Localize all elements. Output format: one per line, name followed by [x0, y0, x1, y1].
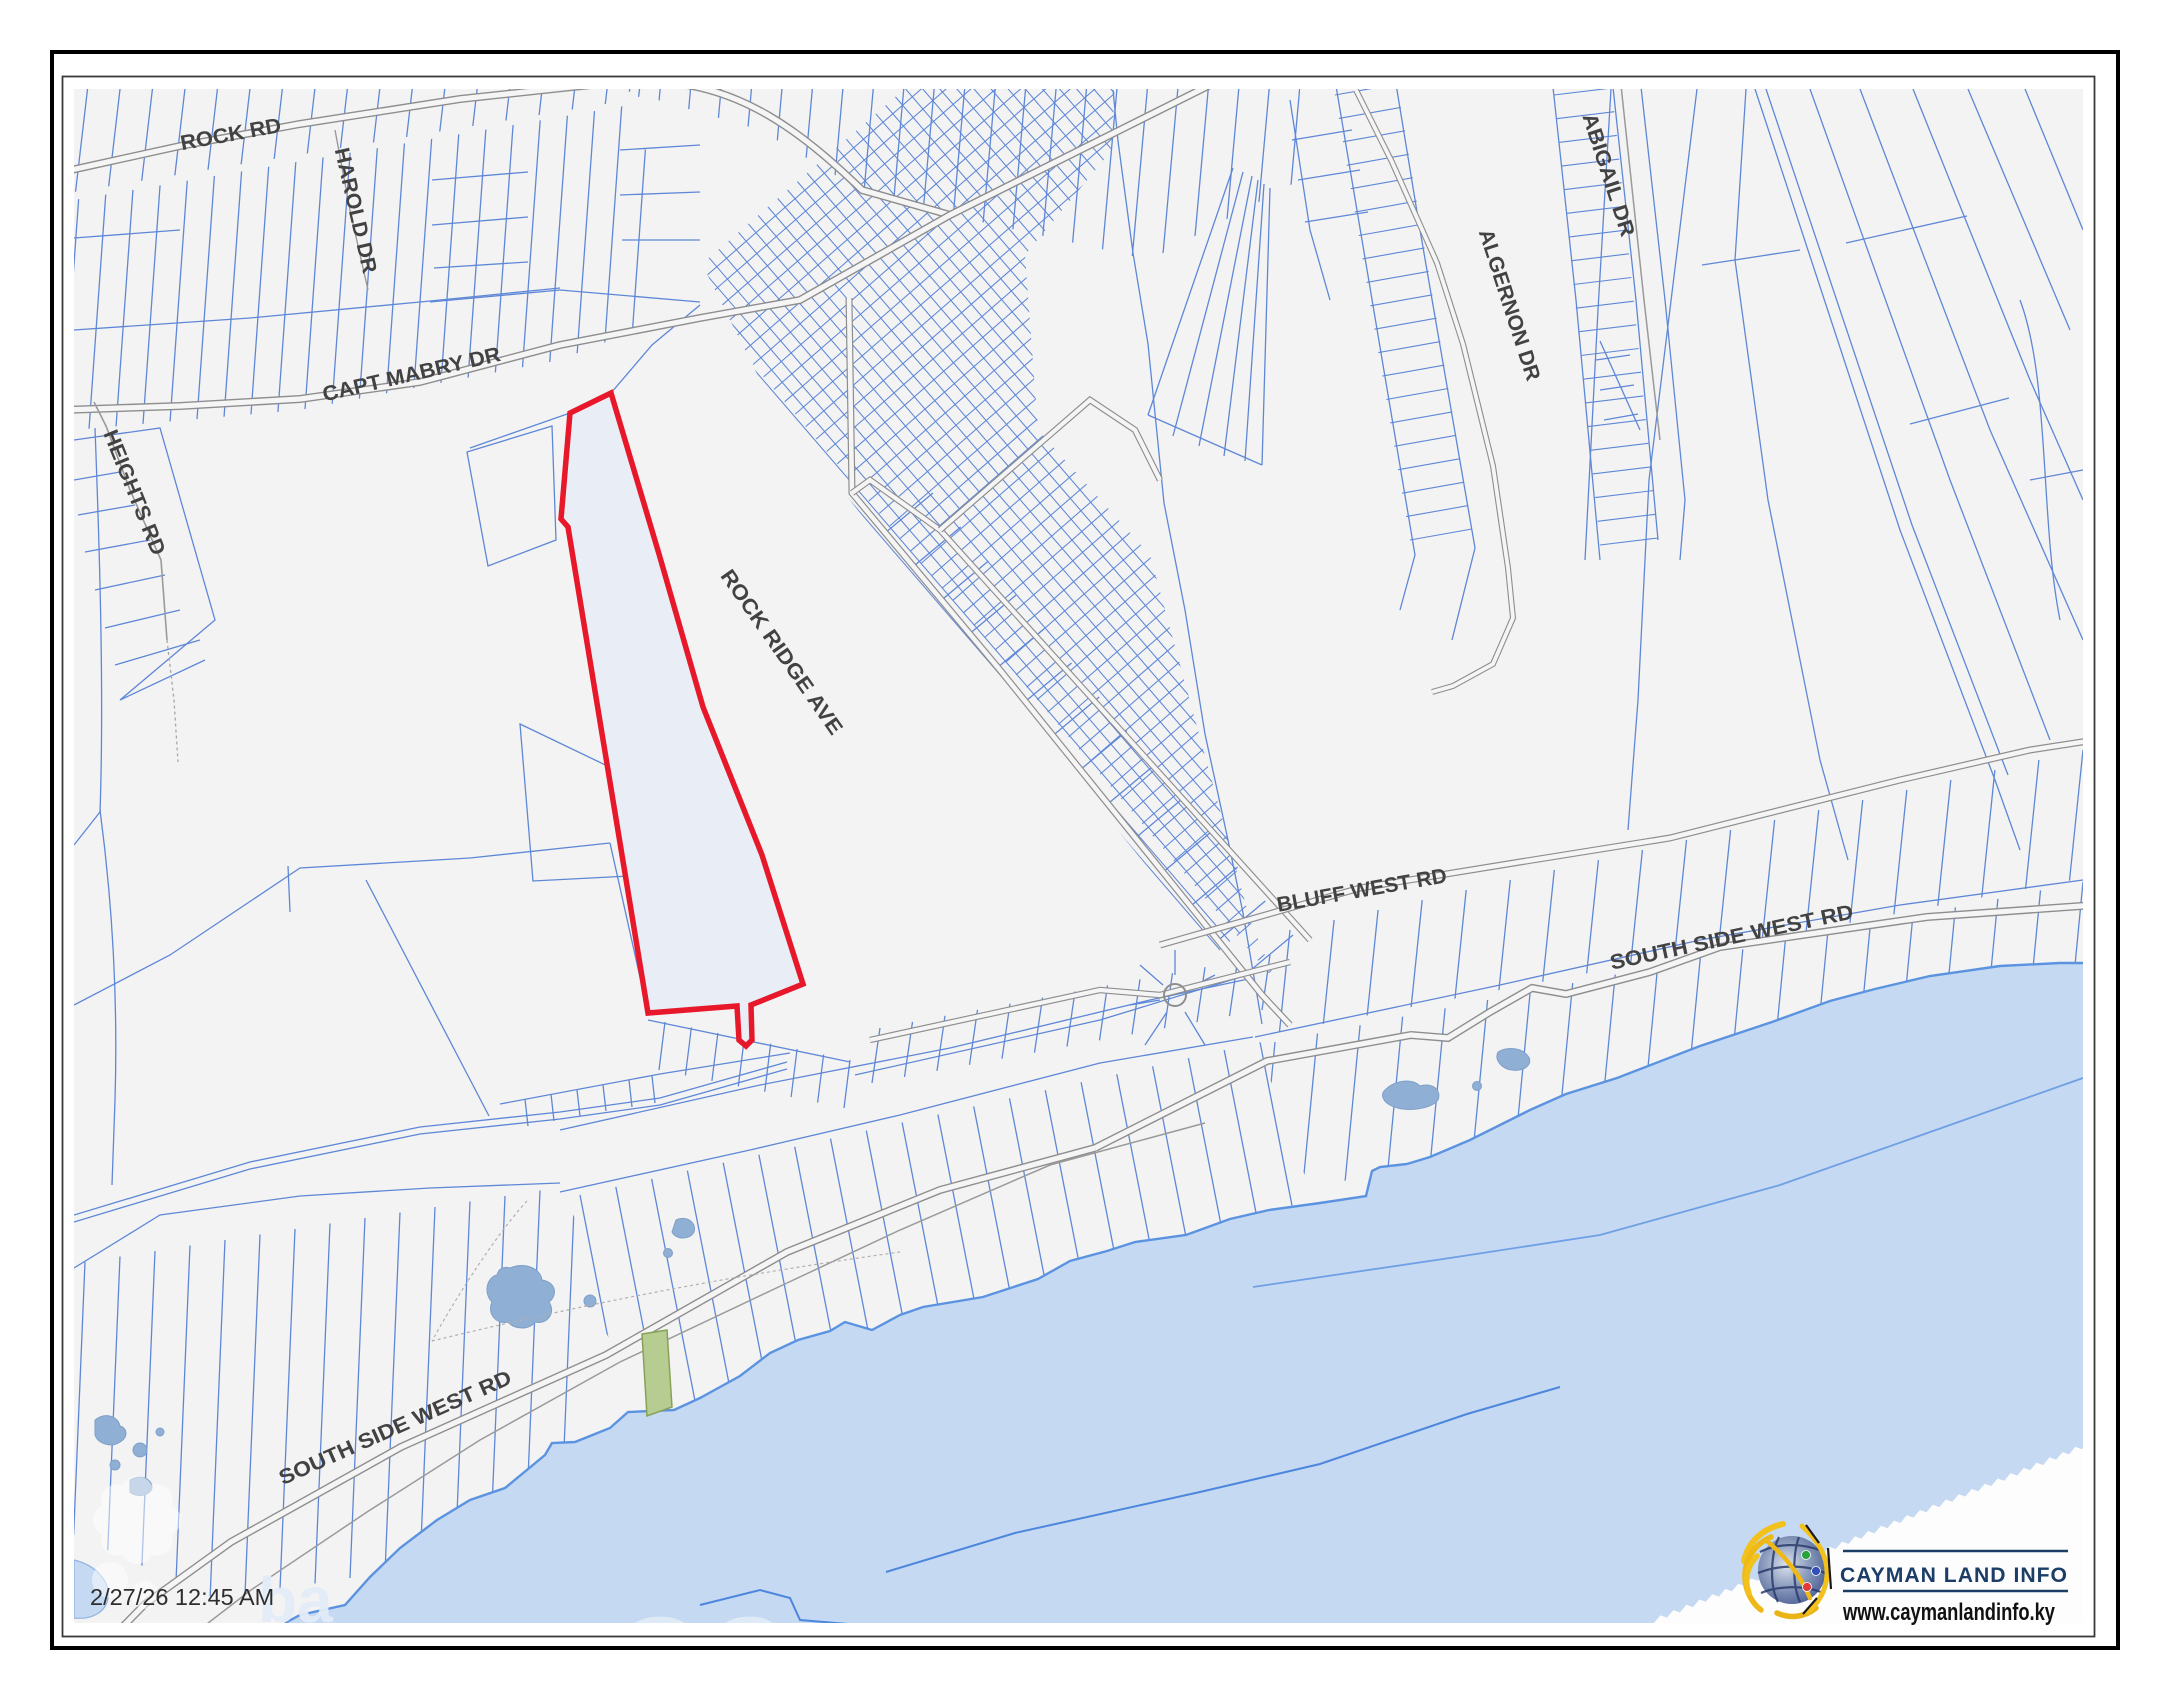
- svg-text:CAYMAN LAND INFO: CAYMAN LAND INFO: [1840, 1564, 2068, 1587]
- svg-text:2/27/26 12:45 AM: 2/27/26 12:45 AM: [90, 1584, 274, 1610]
- svg-text:www.caymanlandinfo.ky: www.caymanlandinfo.ky: [1842, 1599, 2055, 1626]
